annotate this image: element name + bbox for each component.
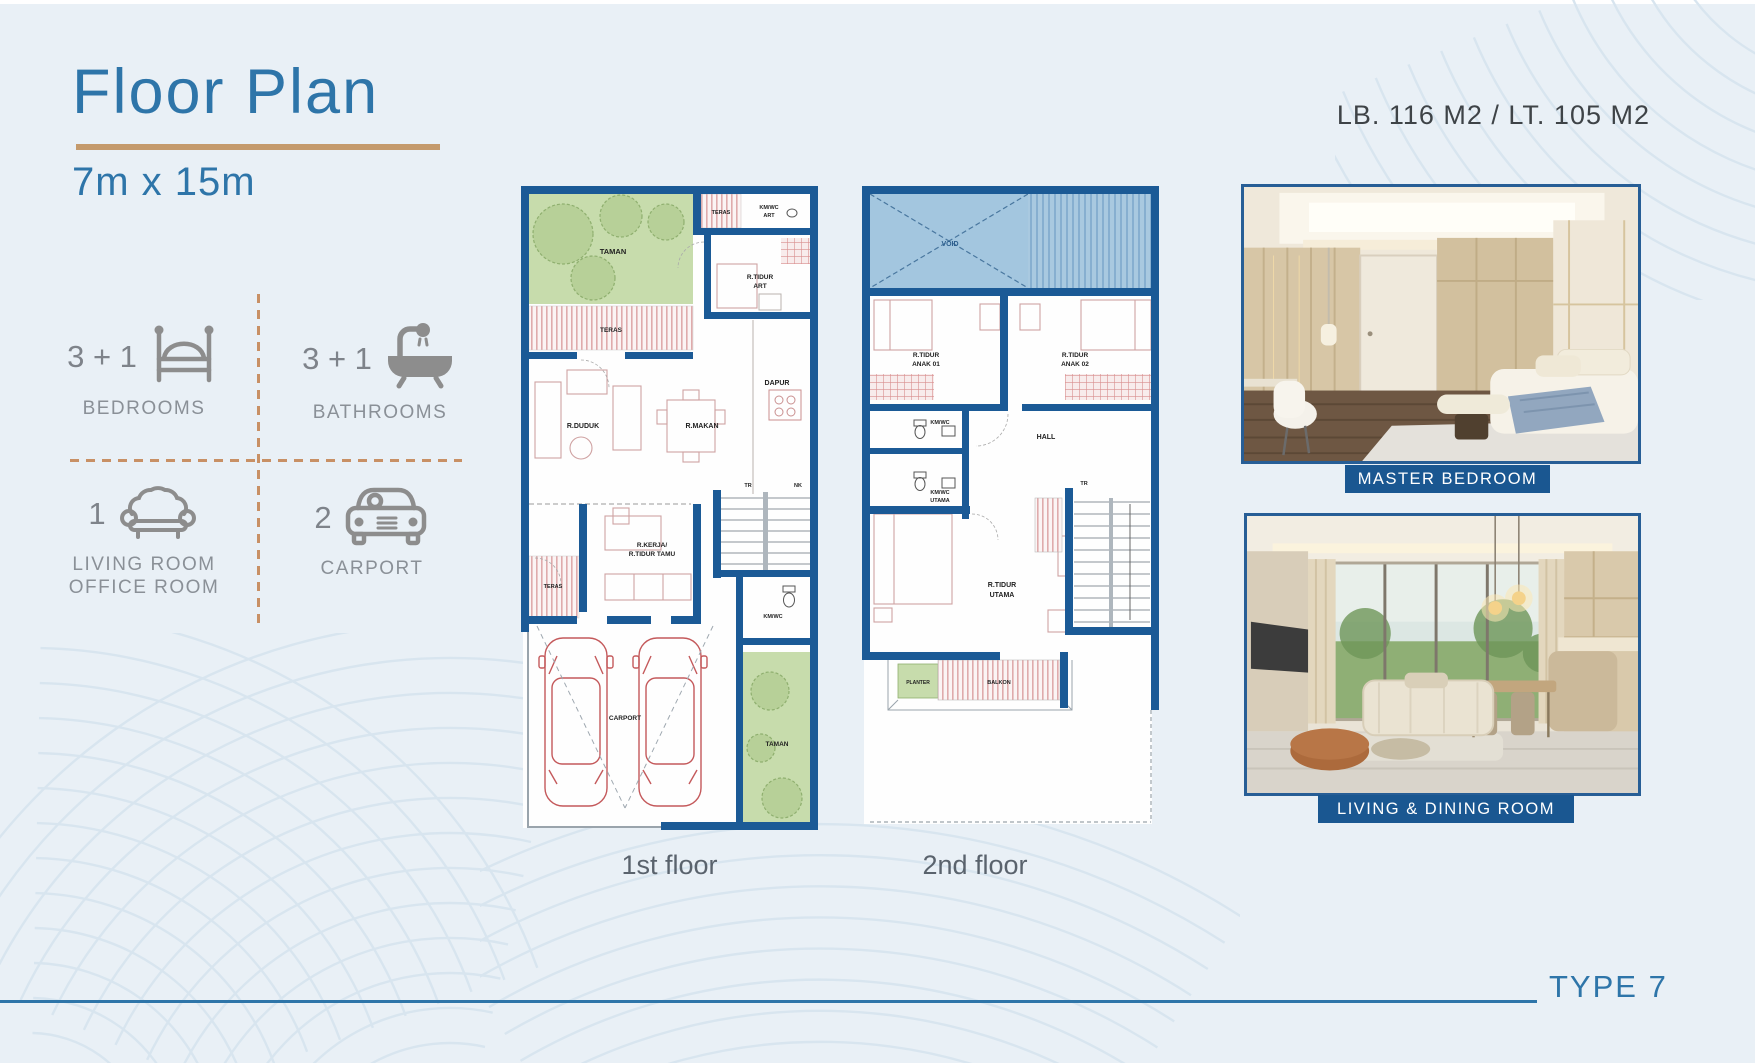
room-label-anak1-1: R.TIDUR (913, 352, 940, 359)
room-label-teras-left: TERAS (544, 584, 563, 590)
room-label-rkerja-2: R.TIDUR TAMU (629, 551, 676, 558)
room-label-kmwc-art-1: KM/WC (759, 205, 778, 211)
living-label-line2: OFFICE ROOM (69, 577, 220, 598)
carport-label: CARPORT (292, 557, 452, 580)
roof-area (1028, 194, 1151, 288)
leaf-watermark-bottom-left (0, 633, 560, 1063)
room-label-rmakan: R.MAKAN (685, 423, 718, 430)
room-label-rkerja-1: R.KERJA/ (637, 542, 668, 549)
bedrooms-label: BEDROOMS (58, 397, 230, 420)
room-label-taman-top: TAMAN (600, 247, 627, 256)
stat-bedrooms: 3 + 1 BEDROOMS (58, 322, 230, 420)
floor-plan-1st: TAMAN TERAS KM/WC ART R.TIDUR ART TERAS … (521, 186, 818, 830)
title-underline (76, 144, 440, 150)
room-label-dapur: DAPUR (765, 380, 790, 387)
carport-count: 2 (314, 500, 331, 536)
room-label-utama-2: UTAMA (990, 592, 1015, 599)
plot-dimensions: 7m x 15m (72, 160, 256, 205)
room-label-kmwc-utama-2: UTAMA (930, 498, 949, 504)
living-dining-render (1247, 516, 1638, 793)
room-label-kmwc-2nd: KM/WC (930, 420, 949, 426)
living-dining-photo (1244, 513, 1641, 796)
room-label-carport: CARPORT (609, 715, 641, 722)
living-label-line1: LIVING ROOM (72, 554, 215, 575)
stats-horizontal-divider (70, 459, 462, 462)
footer-line (0, 1000, 1537, 1003)
living-label: LIVING ROOMOFFICE ROOM (50, 553, 238, 599)
master-bedroom-photo (1241, 184, 1641, 464)
room-label-kmwc: KM/WC (763, 614, 782, 620)
room-label-tr-2nd: TR (1080, 481, 1087, 487)
bed-icon (147, 322, 221, 391)
room-label-teras-top: TERAS (712, 210, 731, 216)
floor-plan-2nd-drawing: VOID R.TIDUR ANAK 01 R.TIDUR ANAK 02 KM/… (862, 186, 1159, 830)
bathtub-icon (382, 322, 458, 395)
room-label-planter: PLANTER (906, 680, 930, 686)
type-label: TYPE 7 (1549, 969, 1668, 1005)
room-label-taman-bottom: TAMAN (766, 741, 789, 748)
room-label-teras-mid: TERAS (600, 327, 623, 334)
stat-bathrooms: 3 + 1 BATHROOMS (294, 322, 466, 424)
room-label-hall: HALL (1037, 434, 1056, 441)
room-label-rtidur-art-2: ART (753, 283, 766, 290)
stat-carport: 2 CARPORT (292, 484, 452, 580)
floor-plan-1st-drawing: TAMAN TERAS KM/WC ART R.TIDUR ART TERAS … (521, 186, 818, 830)
slide-root: Floor Plan 7m x 15m LB. 116 M2 / LT. 105… (0, 0, 1755, 1063)
living-count: 1 (88, 496, 105, 532)
room-label-anak2-1: R.TIDUR (1062, 352, 1089, 359)
room-label-balkon: BALKON (987, 680, 1011, 686)
top-edge-divider (0, 0, 1755, 4)
master-bedroom-banner: MASTER BEDROOM (1345, 465, 1550, 493)
bathrooms-count: 3 + 1 (302, 341, 372, 377)
page-title: Floor Plan (72, 56, 379, 128)
floor-plan-2nd: VOID R.TIDUR ANAK 01 R.TIDUR ANAK 02 KM/… (862, 186, 1159, 830)
bedrooms-count: 3 + 1 (67, 339, 137, 375)
room-label-nk: NK (794, 483, 802, 489)
room-label-kmwc-art-2: ART (763, 213, 775, 219)
room-label-void: VOID (941, 241, 958, 248)
caption-1st-floor: 1st floor (521, 850, 818, 881)
stat-living-room: 1 LIVING ROOMOFFICE ROOM (50, 480, 238, 599)
sofa-icon (116, 480, 200, 547)
room-label-anak2-2: ANAK 02 (1061, 361, 1089, 368)
room-label-kmwc-utama-1: KM/WC (930, 490, 949, 496)
caption-2nd-floor: 2nd floor (862, 850, 1088, 881)
living-dining-banner: LIVING & DINING ROOM (1318, 795, 1574, 823)
room-label-utama-1: R.TIDUR (988, 582, 1016, 589)
room-label-anak1-2: ANAK 01 (912, 361, 940, 368)
master-bedroom-render (1244, 187, 1638, 461)
room-label-rtidur-art-1: R.TIDUR (747, 274, 774, 281)
bathrooms-label: BATHROOMS (294, 401, 466, 424)
room-label-rduduk: R.DUDUK (567, 423, 599, 430)
room-label-tr: TR (744, 483, 751, 489)
area-info: LB. 116 M2 / LT. 105 M2 (1337, 100, 1650, 131)
car-icon (342, 484, 430, 551)
